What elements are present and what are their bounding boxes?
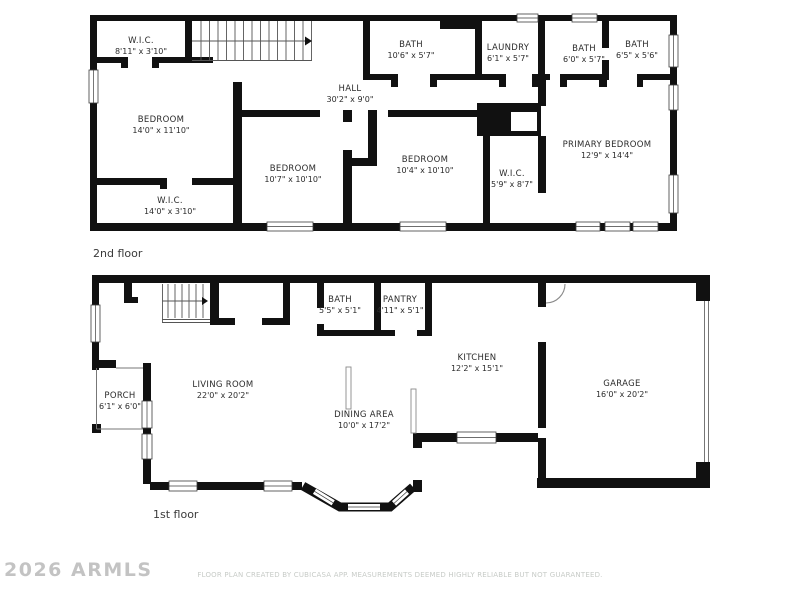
room-label-kitchen: KITCHEN12'2" x 15'1": [451, 353, 503, 374]
garage-door-opening: [705, 301, 709, 462]
room-label-living-room: LIVING ROOM22'0" x 20'2": [192, 380, 253, 401]
floor-plan-page: W.I.C.8'11" x 3'10" BATH10'6" x 5'7" LAU…: [0, 0, 800, 600]
room-label-bath-65: BATH6'5" x 5'6": [616, 40, 658, 61]
first-floor-windows: [91, 305, 496, 491]
room-label-bedroom-104: BEDROOM10'4" x 10'10": [396, 155, 453, 176]
room-label-wic-140: W.I.C.14'0" x 3'10": [144, 196, 196, 217]
first-floor-stairs: [162, 284, 210, 323]
footer-disclaimer: FLOOR PLAN CREATED BY CUBICASA APP. MEAS…: [0, 571, 800, 579]
floor-label-second: 2nd floor: [93, 247, 142, 260]
room-label-bath-55: BATH5'5" x 5'1": [319, 295, 361, 316]
room-label-wic-upper-left: W.I.C.8'11" x 3'10": [115, 36, 167, 57]
room-label-dining-area: DINING AREA10'0" x 17'2": [334, 410, 394, 431]
garage-door-swing-arc: [546, 284, 565, 303]
second-floor-stairs: [192, 21, 312, 61]
stairs-up-arrow: [305, 37, 312, 46]
stairs-down-arrow: [202, 297, 208, 305]
room-label-hall: HALL30'2" x 9'0": [326, 84, 373, 105]
room-label-primary-bedroom: PRIMARY BEDROOM12'9" x 14'4": [563, 140, 652, 161]
room-label-wic-59: W.I.C.5'9" x 8'7": [491, 169, 533, 190]
room-label-bath-60: BATH6'0" x 5'7": [563, 44, 605, 65]
room-label-bedroom-107: BEDROOM10'7" x 10'10": [264, 164, 321, 185]
room-label-laundry: LAUNDRY6'1" x 5'7": [487, 43, 530, 64]
room-label-pantry: PANTRY4'11" x 5'1": [376, 295, 423, 316]
bay-window: [303, 486, 413, 507]
room-label-bedroom-140: BEDROOM14'0" x 11'10": [132, 115, 189, 136]
room-label-garage: GARAGE16'0" x 20'2": [596, 379, 648, 400]
room-label-bath-106: BATH10'6" x 5'7": [387, 40, 434, 61]
floor-label-first: 1st floor: [153, 508, 198, 521]
room-label-porch: PORCH6'1" x 6'0": [99, 391, 141, 412]
